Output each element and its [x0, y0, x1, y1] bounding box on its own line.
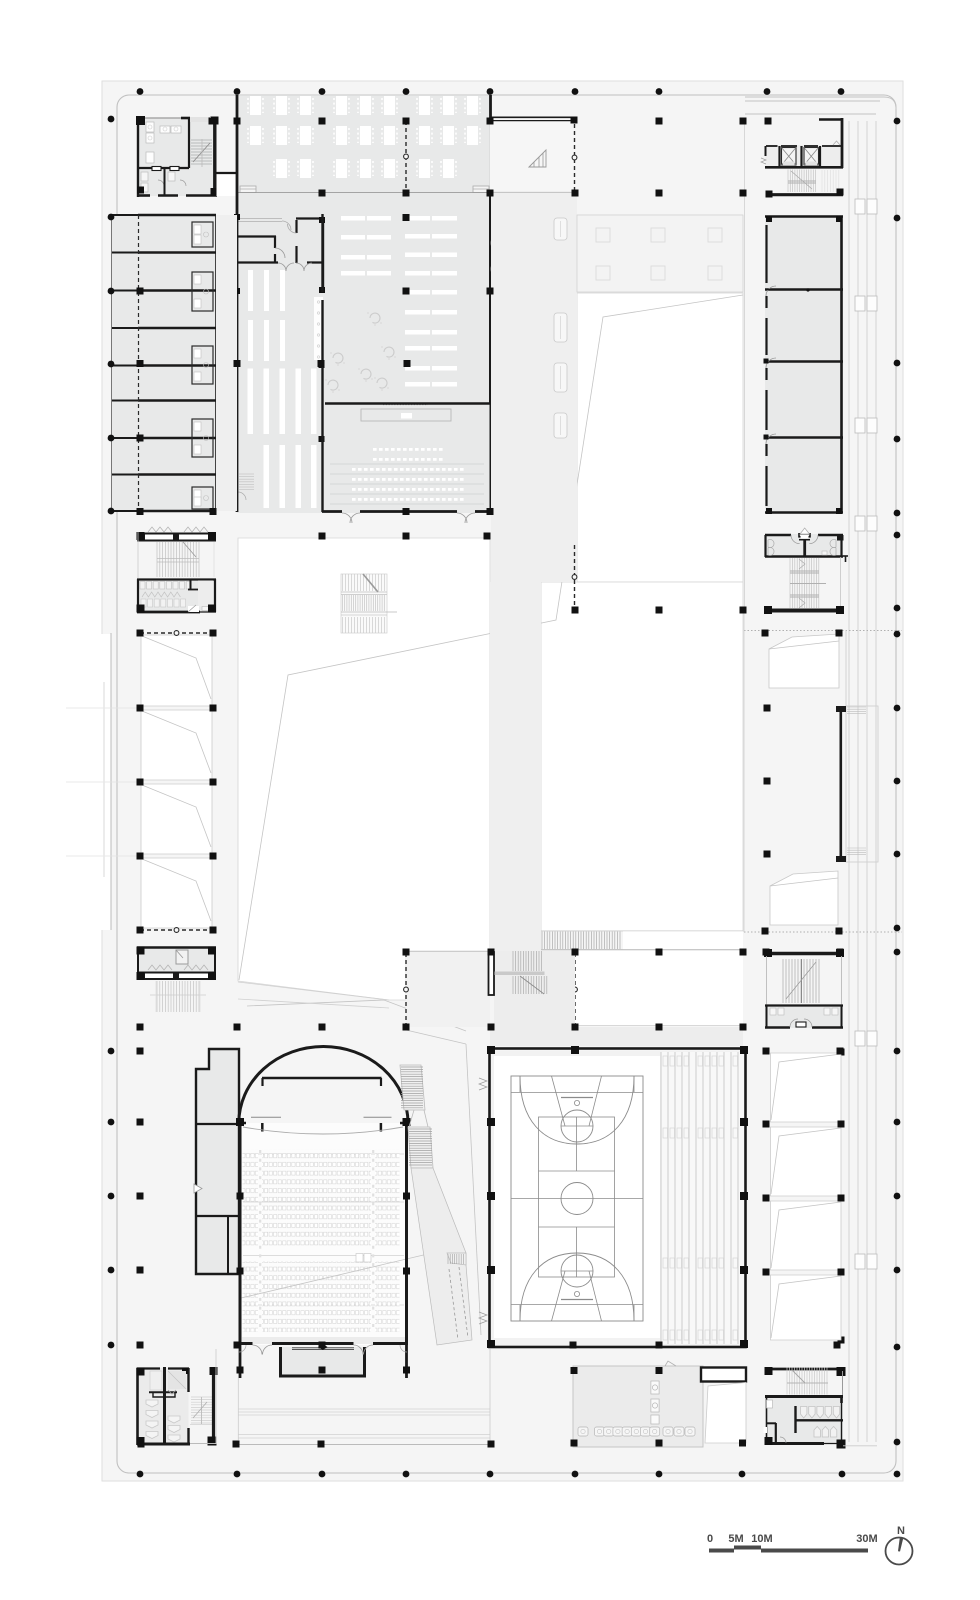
svg-text:30M: 30M: [856, 1533, 877, 1545]
svg-text:10M: 10M: [751, 1533, 772, 1545]
svg-text:0: 0: [707, 1533, 713, 1545]
svg-text:5M: 5M: [728, 1533, 743, 1545]
svg-text:N: N: [897, 1525, 905, 1537]
